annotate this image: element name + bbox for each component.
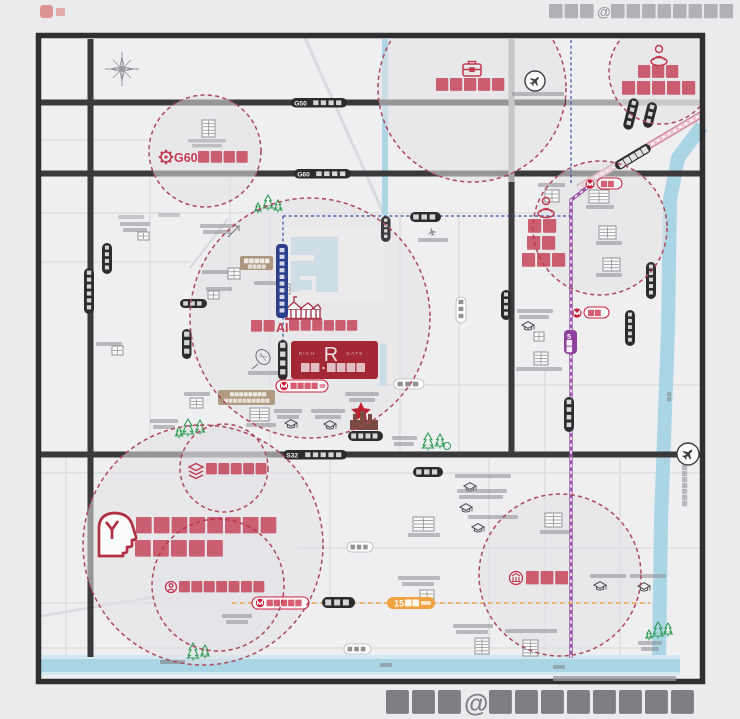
svg-text:G50: G50 xyxy=(294,100,307,107)
svg-text:G60: G60 xyxy=(174,151,198,165)
svg-text:@: @ xyxy=(597,4,611,20)
svg-text:5: 5 xyxy=(567,332,571,341)
svg-text:G60: G60 xyxy=(297,171,310,178)
svg-text:R: R xyxy=(324,344,338,366)
svg-text:@: @ xyxy=(464,690,488,718)
svg-text:15: 15 xyxy=(394,599,404,609)
svg-text:RICH: RICH xyxy=(299,351,316,356)
svg-text:GATE: GATE xyxy=(346,351,364,356)
svg-text:S32: S32 xyxy=(286,452,298,459)
svg-text:AI: AI xyxy=(276,321,289,335)
